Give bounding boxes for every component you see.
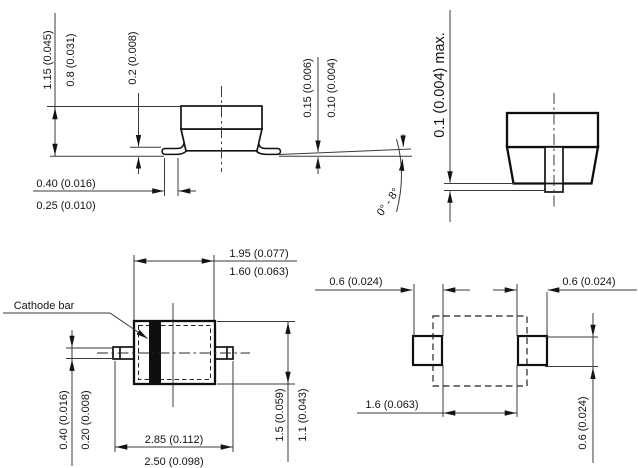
dim-foot-length-max: 0.40 (0.016) <box>36 178 95 190</box>
dim-pad-height <box>545 313 598 463</box>
cathode-bar <box>149 322 161 383</box>
dim-side-height-max: 1.15 (0.045) <box>42 30 54 89</box>
dim-lead-thickness <box>130 93 161 174</box>
dim-foot-length <box>33 158 196 196</box>
dim-body-width-max: 1.5 (0.059) <box>274 388 286 441</box>
dim-body-length <box>134 255 297 320</box>
end-view: 0.1 (0.004) max. <box>432 10 598 222</box>
top-view-body <box>134 321 215 384</box>
cathode-bar-label: Cathode bar <box>14 300 75 312</box>
dim-pad-width-right <box>493 284 637 336</box>
dim-foot-angle-label: 0° - 8° <box>375 186 403 218</box>
land-pattern-view: 0.6 (0.024) 0.6 (0.024) 1.6 (0.063) 0.6 … <box>315 276 637 463</box>
dim-lead-width-max: 0.40 (0.016) <box>58 390 70 449</box>
land-pad-left <box>413 336 442 365</box>
dim-body-width-min: 1.1 (0.043) <box>297 388 309 441</box>
dim-standoff-min: 0.10 (0.004) <box>326 58 338 117</box>
dim-pad-width-left <box>315 284 470 336</box>
dim-standoff-max: 0.15 (0.006) <box>302 58 314 117</box>
dim-pad-gap-label: 1.6 (0.063) <box>365 399 418 411</box>
dim-body-length-max: 1.95 (0.077) <box>229 248 288 260</box>
dim-coplanarity-label: 0.1 (0.004) max. <box>432 32 448 138</box>
cathode-bar-leader <box>3 313 148 339</box>
top-view: Cathode bar 1.95 (0.077) 1.60 (0.063) 0.… <box>3 248 309 468</box>
dim-pad-width-right-label: 0.6 (0.024) <box>562 276 615 288</box>
dim-foot-angle <box>397 134 404 212</box>
land-package-outline <box>433 316 527 386</box>
package-outline-drawing: 1.15 (0.045) 0.8 (0.031) 0.2 (0.008) 0.1… <box>0 0 638 468</box>
dim-lead-thickness-label: 0.2 (0.008) <box>127 31 139 84</box>
dim-body-length-min: 1.60 (0.063) <box>229 266 288 278</box>
dim-pad-height-label: 0.6 (0.024) <box>577 396 589 449</box>
end-view-body <box>507 113 598 192</box>
dim-overall-length-min: 2.50 (0.098) <box>144 456 203 468</box>
dim-lead-width-min: 0.20 (0.008) <box>80 390 92 449</box>
land-pad-right <box>518 336 547 365</box>
dim-side-height-min: 0.8 (0.031) <box>65 33 77 86</box>
side-view: 1.15 (0.045) 0.8 (0.031) 0.2 (0.008) 0.1… <box>33 13 412 218</box>
drawing-canvas: 1.15 (0.045) 0.8 (0.031) 0.2 (0.008) 0.1… <box>0 0 638 468</box>
dim-pad-width-left-label: 0.6 (0.024) <box>329 276 382 288</box>
dim-overall-length-max: 2.85 (0.112) <box>145 434 204 446</box>
dim-foot-length-min: 0.25 (0.010) <box>36 200 95 212</box>
